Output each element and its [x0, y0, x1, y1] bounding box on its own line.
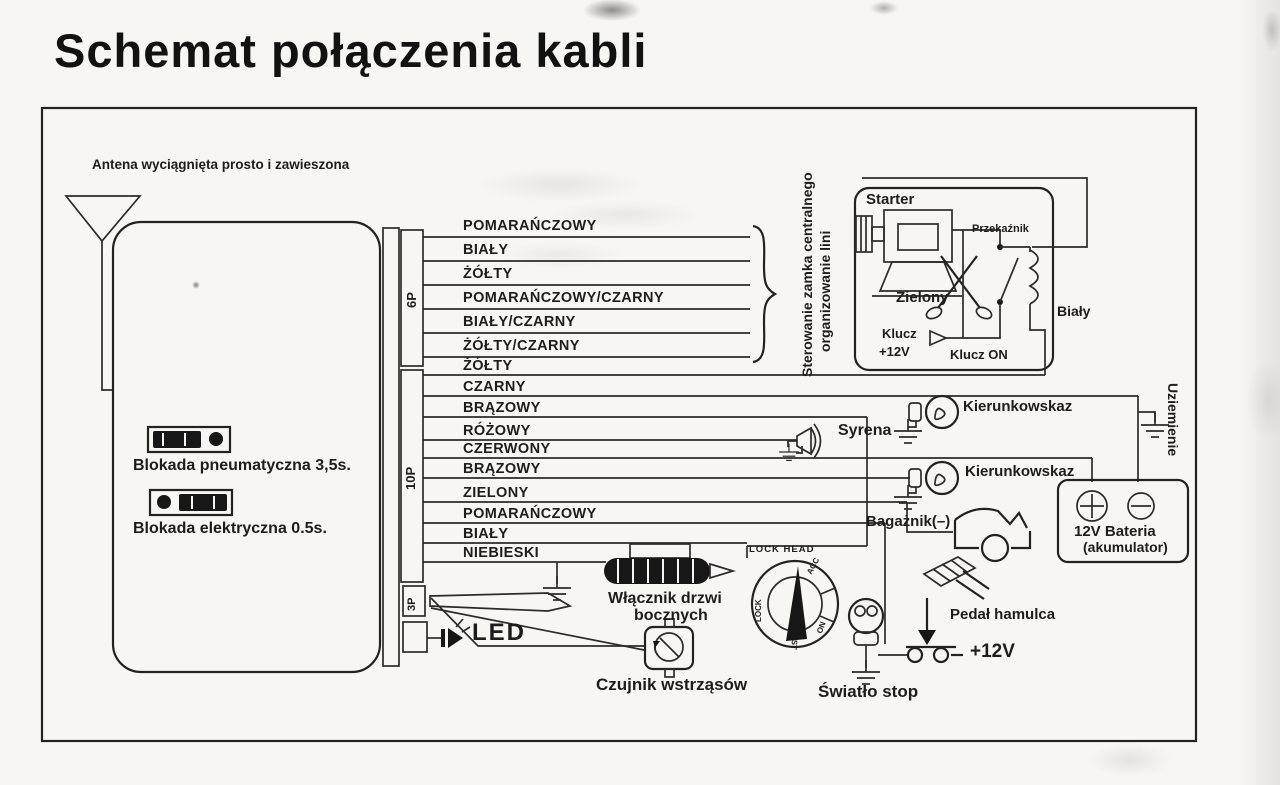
- wire-label: BIAŁY: [463, 527, 509, 542]
- jumper-pneumatic-icon: [148, 427, 230, 452]
- key-on-label: Klucz ON: [950, 348, 1008, 362]
- led-icon: [427, 619, 470, 648]
- arrow-down-icon: [906, 598, 956, 647]
- ignition-lock-icon: [752, 561, 838, 647]
- wire-label: BIAŁY: [463, 243, 509, 258]
- connector-led: [403, 622, 427, 652]
- brace-icon: [753, 226, 775, 362]
- battery-label-line1: 12V Bateria: [1074, 524, 1156, 540]
- wire-label: BRĄZOWY: [463, 462, 541, 477]
- battery-label-line2: (akumulator): [1083, 540, 1168, 555]
- wire-label: BRĄZOWY: [463, 401, 541, 416]
- plus12v-label: +12V: [970, 642, 1015, 662]
- brake-pedal-label: Pedał hamulca: [950, 607, 1055, 623]
- plus12v-terminals-icon: [908, 648, 963, 662]
- led-label: LED: [472, 620, 526, 645]
- side-door-label-line1: Włącznik drzwi: [608, 591, 722, 608]
- brace-note-line2: organizowanie lini: [818, 231, 833, 352]
- wire-label: CZERWONY: [463, 442, 551, 457]
- relay-label: Przekaźnik: [972, 224, 1029, 236]
- wire-label: BIAŁY/CZARNY: [463, 315, 576, 330]
- wire-label: RÓŻOWY: [463, 424, 531, 439]
- wire-label: CZARNY: [463, 380, 526, 395]
- trunk-label: Bagażnik(–): [866, 514, 950, 530]
- lock-pos-st: ST: [789, 639, 798, 650]
- brace-note-line1: Sterowanie zamka centralnego: [800, 172, 815, 377]
- key-label-line1: Klucz: [882, 327, 917, 341]
- lock-head-label: LOCK HEAD: [749, 545, 814, 555]
- brake-pedal-icon: [924, 557, 989, 599]
- ground-label: Uziemienie: [1165, 383, 1180, 456]
- stop-light-label: Światło stop: [818, 683, 918, 701]
- wire-label: ZIELONY: [463, 486, 529, 501]
- siren-icon: [788, 424, 821, 458]
- ground-icon: [894, 485, 922, 509]
- starter-title: Starter: [866, 192, 914, 208]
- key-label-line2: +12V: [879, 345, 910, 359]
- connector-3p-label: 3P: [407, 598, 419, 611]
- diagram-canvas: [0, 0, 1280, 785]
- wire-label: ŻÓŁTY: [463, 267, 513, 282]
- wire-label: POMARAŃCZOWY/CZARNY: [463, 291, 664, 306]
- page-title: Schemat połączenia kabli: [54, 26, 647, 75]
- wire-label: NIEBIESKI: [463, 546, 539, 561]
- ground-icon: [543, 576, 571, 600]
- white-wire-label: Biały: [1057, 304, 1090, 319]
- connector-6p-label: 6P: [405, 292, 419, 308]
- starter-motor-icon: [856, 210, 962, 296]
- lock-pos-lock: LOCK: [755, 599, 763, 622]
- scanned-wiring-diagram: Schemat połączenia kabli Antena wyciągni…: [0, 0, 1280, 785]
- connector-10p-label: 10P: [404, 467, 418, 490]
- turn-signal-bulb-icon: [908, 396, 958, 428]
- door-switch-icon: [604, 544, 733, 584]
- siren-label: Syrena: [838, 423, 891, 440]
- pneumatic-lock-label: Blokada pneumatyczna 3,5s.: [133, 458, 351, 475]
- shock-sensor-label: Czujnik wstrząsów: [596, 676, 747, 694]
- ground-icon: [894, 419, 922, 443]
- wire-label: POMARAŃCZOWY: [463, 219, 597, 234]
- shock-sensor-icon: [645, 619, 693, 677]
- turn-signal-label-1: Kierunkowskaz: [963, 399, 1072, 415]
- antenna-label: Antena wyciągnięta prosto i zawieszona: [92, 158, 349, 172]
- wire-label: POMARAŃCZOWY: [463, 507, 597, 522]
- turn-signal-bulb-icon: [908, 462, 958, 494]
- turn-signal-label-2: Kierunkowskaz: [965, 464, 1074, 480]
- electric-lock-label: Blokada elektryczna 0.5s.: [133, 521, 327, 538]
- trunk-icon: [955, 509, 1030, 561]
- green-wire-label: Zielony: [896, 290, 949, 306]
- wire-label: ŻÓŁTY: [463, 359, 513, 374]
- side-door-label-line2: bocznych: [634, 608, 708, 625]
- stop-light-bulb-icon: [849, 599, 907, 668]
- jumper-electric-icon: [150, 490, 232, 515]
- wire-label: ŻÓŁTY/CZARNY: [463, 339, 580, 354]
